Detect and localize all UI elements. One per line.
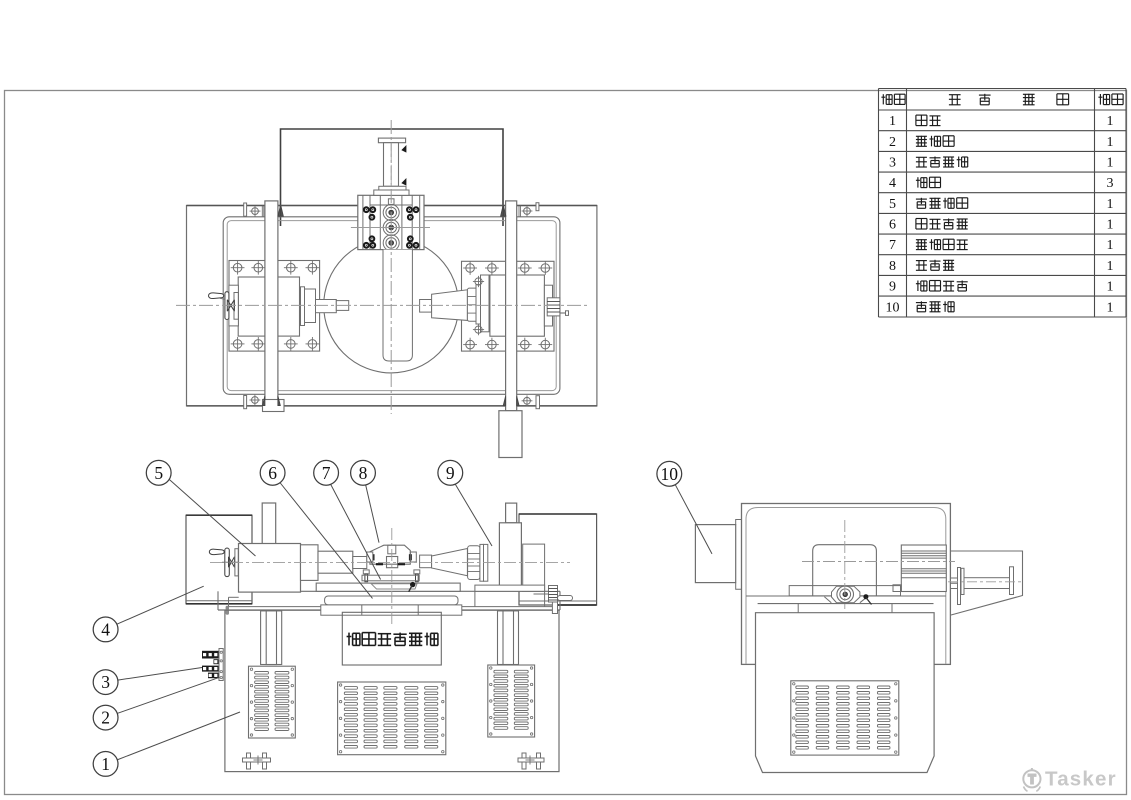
svg-text:6: 6 [889,218,896,233]
svg-text:1: 1 [1107,114,1114,129]
svg-text:7: 7 [322,463,331,483]
svg-text:9: 9 [889,280,896,295]
svg-text:1: 1 [1107,280,1114,295]
svg-text:1: 1 [1107,197,1114,212]
svg-text:1: 1 [1107,156,1114,171]
svg-text:1: 1 [1107,135,1114,150]
svg-text:4: 4 [101,619,110,639]
svg-text:1: 1 [1107,218,1114,233]
svg-text:2: 2 [101,708,110,728]
svg-text:1: 1 [889,114,896,129]
svg-text:7: 7 [889,238,896,253]
svg-text:10: 10 [661,464,679,484]
svg-text:3: 3 [1107,176,1114,191]
svg-text:2: 2 [889,135,896,150]
svg-text:1: 1 [101,754,110,774]
svg-text:1: 1 [1107,259,1114,274]
svg-text:3: 3 [889,156,896,171]
svg-text:5: 5 [154,463,163,483]
svg-text:1: 1 [1107,238,1114,253]
svg-text:1: 1 [1107,300,1114,315]
svg-text:8: 8 [359,463,368,483]
svg-text:8: 8 [889,259,896,274]
svg-text:5: 5 [889,197,896,212]
svg-text:6: 6 [268,463,277,483]
svg-text:3: 3 [101,672,110,692]
svg-text:4: 4 [889,176,896,191]
svg-text:10: 10 [886,300,900,315]
svg-text:Tasker: Tasker [1045,768,1117,791]
svg-text:9: 9 [446,463,455,483]
